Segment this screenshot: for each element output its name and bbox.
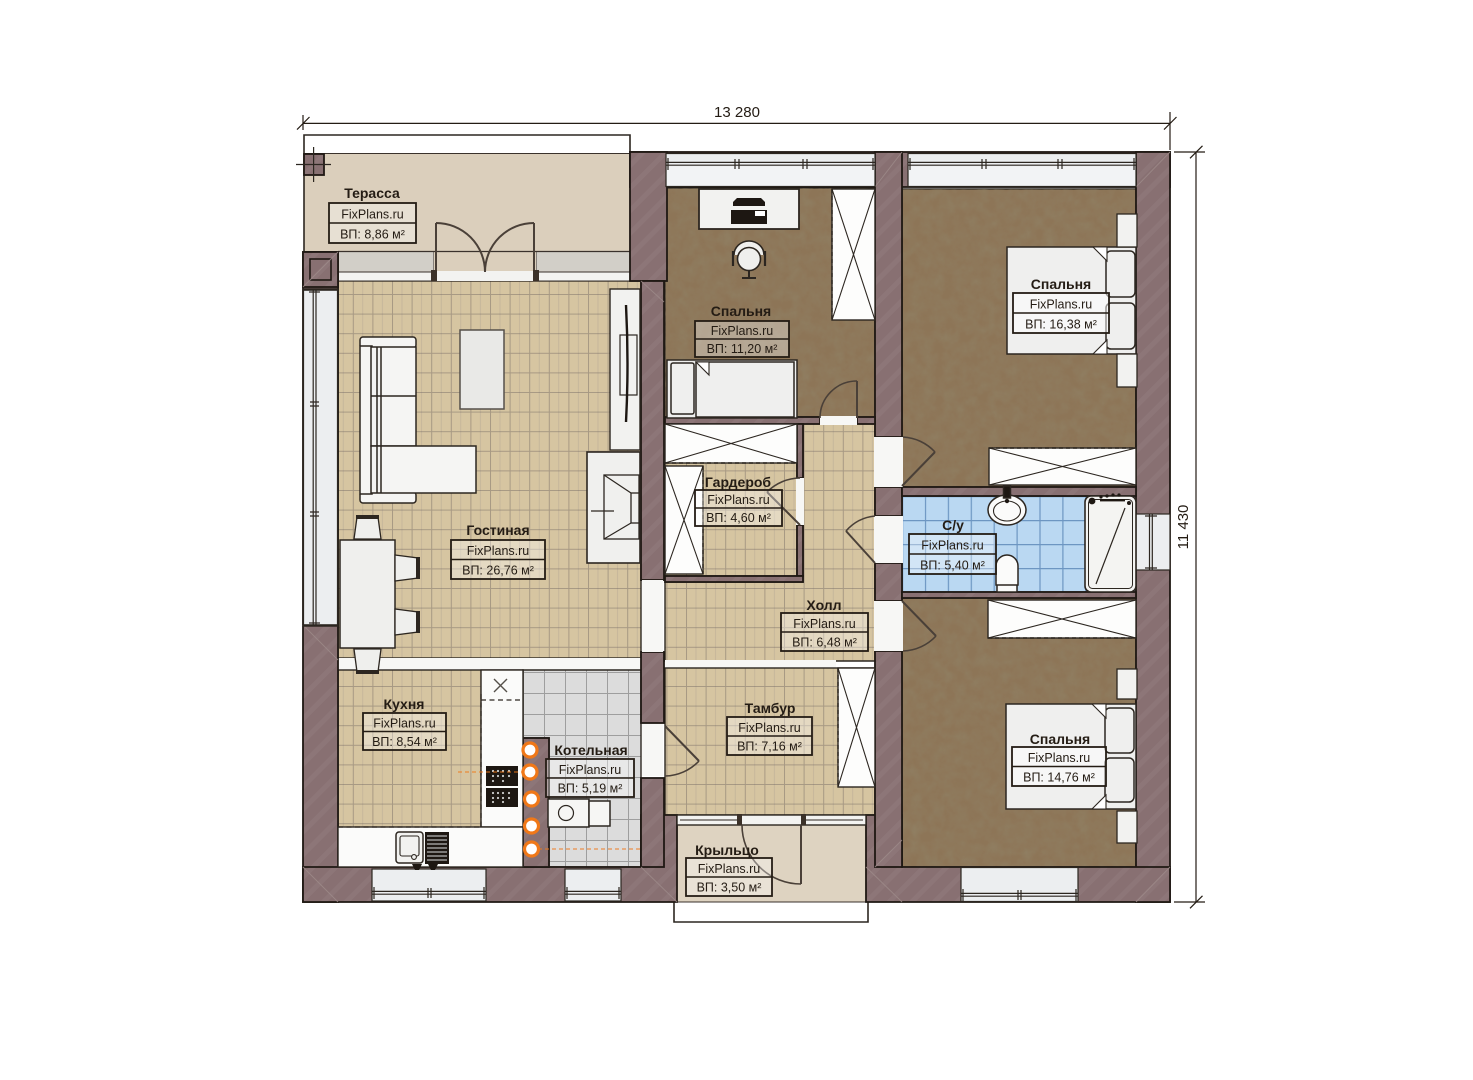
svg-text:Терасса: Терасса — [344, 185, 400, 201]
svg-text:FixPlans.ru: FixPlans.ru — [373, 717, 436, 731]
svg-text:FixPlans.ru: FixPlans.ru — [793, 617, 856, 631]
svg-text:Крыльцо: Крыльцо — [695, 842, 759, 858]
svg-text:FixPlans.ru: FixPlans.ru — [1028, 751, 1091, 765]
svg-text:Кухня: Кухня — [384, 696, 425, 712]
svg-text:ВП: 14,76 м²: ВП: 14,76 м² — [1023, 771, 1095, 785]
svg-text:ВП: 5,40 м²: ВП: 5,40 м² — [920, 559, 985, 573]
svg-text:11 430: 11 430 — [1175, 505, 1192, 550]
svg-text:ВП: 7,16 м²: ВП: 7,16 м² — [737, 740, 802, 754]
svg-text:Спальня: Спальня — [711, 303, 771, 319]
svg-text:ВП: 26,76 м²: ВП: 26,76 м² — [462, 564, 534, 578]
svg-text:С/у: С/у — [942, 517, 964, 533]
svg-text:Спальня: Спальня — [1030, 731, 1090, 747]
svg-text:FixPlans.ru: FixPlans.ru — [467, 544, 530, 558]
svg-text:ВП: 16,38 м²: ВП: 16,38 м² — [1025, 318, 1097, 332]
svg-text:FixPlans.ru: FixPlans.ru — [559, 763, 622, 777]
svg-text:ВП: 8,54 м²: ВП: 8,54 м² — [372, 735, 437, 749]
svg-text:FixPlans.ru: FixPlans.ru — [921, 539, 984, 553]
svg-text:Гостиная: Гостиная — [466, 522, 529, 538]
svg-text:ВП: 4,60 м²: ВП: 4,60 м² — [706, 511, 771, 525]
svg-text:Холл: Холл — [806, 597, 841, 613]
svg-text:ВП: 6,48 м²: ВП: 6,48 м² — [792, 636, 857, 650]
svg-text:Тамбур: Тамбур — [745, 700, 796, 716]
svg-text:FixPlans.ru: FixPlans.ru — [707, 493, 770, 507]
svg-text:ВП: 5,19 м²: ВП: 5,19 м² — [558, 782, 623, 796]
svg-text:ВП: 3,50 м²: ВП: 3,50 м² — [697, 881, 762, 895]
svg-text:ВП: 8,86 м²: ВП: 8,86 м² — [340, 228, 405, 242]
svg-text:Спальня: Спальня — [1031, 276, 1091, 292]
svg-text:13 280: 13 280 — [714, 104, 760, 121]
svg-text:FixPlans.ru: FixPlans.ru — [1030, 298, 1093, 312]
svg-text:FixPlans.ru: FixPlans.ru — [341, 208, 404, 222]
svg-text:FixPlans.ru: FixPlans.ru — [698, 862, 761, 876]
svg-text:Котельная: Котельная — [554, 742, 627, 758]
svg-text:FixPlans.ru: FixPlans.ru — [711, 324, 774, 338]
svg-text:FixPlans.ru: FixPlans.ru — [738, 721, 801, 735]
svg-text:ВП: 11,20 м²: ВП: 11,20 м² — [707, 342, 778, 356]
svg-text:Гардероб: Гардероб — [705, 474, 772, 490]
